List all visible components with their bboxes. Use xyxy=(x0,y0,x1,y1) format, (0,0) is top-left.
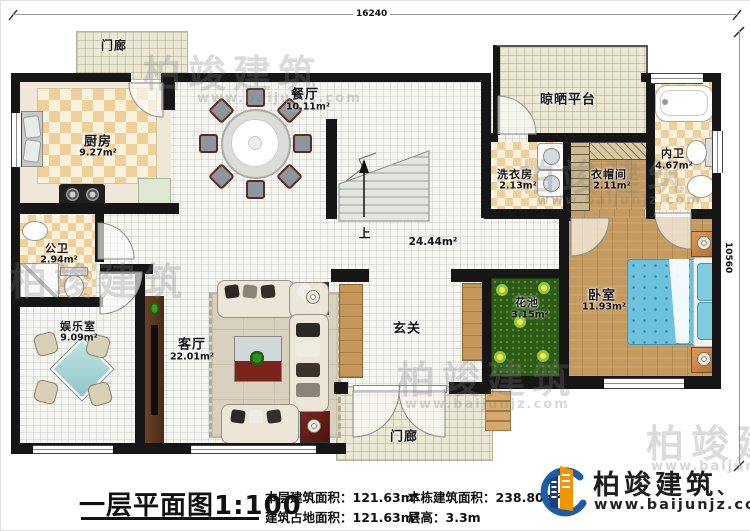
wall xyxy=(135,264,145,454)
wall xyxy=(646,82,655,211)
logo-url: www.baijunjz.com xyxy=(594,497,750,513)
room-area-public-bath: 2.94m² xyxy=(40,255,78,266)
pillow xyxy=(230,409,246,424)
kitchen-counter-unit xyxy=(138,178,171,206)
nightstand-lamp xyxy=(696,235,712,251)
room-area-entertainment: 9.09m² xyxy=(60,333,98,344)
room-area-master-bath: 4.67m² xyxy=(655,161,693,172)
room-label-drying-platform: 晾晒平台 xyxy=(540,89,596,108)
room-label-living: 客厅 xyxy=(178,334,206,353)
stat-label: 本栋建筑面积： xyxy=(408,490,496,505)
table-lamp xyxy=(306,290,320,304)
room-area-bedroom: 11.93m² xyxy=(582,302,626,313)
bath-sink xyxy=(22,221,48,241)
wall xyxy=(484,209,571,219)
room-label-porch-bottom: 门廊 xyxy=(390,426,418,445)
room-label-master-bath: 内卫 xyxy=(661,145,685,161)
entry-door-leaf xyxy=(399,385,447,393)
wall xyxy=(334,382,348,394)
entry-door-leaf xyxy=(353,385,401,393)
pillow xyxy=(260,284,275,298)
wardrobe xyxy=(589,142,648,160)
stat-label: 本层建筑面积： xyxy=(265,490,353,505)
wall xyxy=(95,214,104,262)
tv xyxy=(151,325,158,415)
logo-brush-mark: 、 xyxy=(717,478,739,499)
wall xyxy=(11,73,131,82)
room-area-dining: 10.11m² xyxy=(286,102,330,113)
pillow xyxy=(296,323,320,337)
wall xyxy=(161,73,491,82)
table-lamp xyxy=(307,419,321,433)
room-area-kitchen: 9.27m² xyxy=(79,148,117,159)
dimension-top-value: 16240 xyxy=(353,9,390,19)
wall xyxy=(481,82,491,218)
stairs-up-label: 上 xyxy=(358,225,371,242)
foyer-cabinet-right xyxy=(462,283,484,361)
wall xyxy=(528,133,654,142)
foyer-cabinet-left xyxy=(339,284,363,378)
hall-area-label: 24.44m² xyxy=(409,236,458,248)
room-area-planter: 3.15m² xyxy=(511,310,549,321)
shower xyxy=(20,263,59,298)
wall xyxy=(449,382,491,394)
window xyxy=(604,378,684,389)
wall xyxy=(11,203,179,214)
window xyxy=(712,131,723,173)
basin xyxy=(687,175,715,198)
wall xyxy=(326,119,337,219)
pillow xyxy=(266,409,282,424)
potted-plant xyxy=(246,347,268,369)
stat-floor-area: 本层建筑面积：121.63m² xyxy=(265,487,419,506)
wall xyxy=(712,82,721,389)
wall xyxy=(559,216,569,382)
stat-label: 建筑占地面积： xyxy=(265,510,353,525)
wall xyxy=(563,141,571,211)
pillow xyxy=(249,410,263,423)
wall xyxy=(484,133,498,142)
closet-shelf xyxy=(570,142,590,211)
dimension-right-value: 10560 xyxy=(723,239,733,276)
flower xyxy=(534,347,552,365)
cabinet-plant xyxy=(149,301,160,316)
flower xyxy=(493,281,511,299)
floor-plan-canvas: 16240 10560 xyxy=(0,0,750,531)
title-underline xyxy=(81,517,259,520)
window xyxy=(11,113,22,167)
dining-chair xyxy=(293,134,312,153)
wall xyxy=(482,376,721,389)
room-label-foyer: 玄关 xyxy=(393,318,421,337)
room-area-living: 22.01m² xyxy=(170,352,214,363)
dining-table-hub xyxy=(248,136,262,150)
wall xyxy=(11,297,103,307)
room-area-laundry: 2.13m² xyxy=(499,181,537,192)
stat-footprint-area: 建筑占地面积：121.63m² xyxy=(265,507,419,526)
window xyxy=(191,445,316,454)
porch-bottom xyxy=(336,386,493,461)
flower xyxy=(491,348,509,366)
dining-chair xyxy=(246,180,265,199)
wall xyxy=(100,264,153,274)
wall xyxy=(482,269,567,278)
dining-chair xyxy=(246,88,265,107)
kitchen-sink xyxy=(21,111,43,167)
wall xyxy=(482,269,491,382)
nightstand-lamp xyxy=(696,351,712,367)
room-area-closet: 2.11m² xyxy=(593,181,631,192)
pillow xyxy=(296,363,320,377)
washing-machine xyxy=(537,143,565,170)
wall xyxy=(331,269,369,282)
dining-chair xyxy=(199,134,218,153)
logo-icon xyxy=(537,461,589,525)
stat-floor-height: 层高：3.3m xyxy=(408,507,481,526)
pillow xyxy=(296,383,320,397)
pillow xyxy=(224,284,240,299)
toilet-bowl xyxy=(64,275,84,299)
stat-value: 3.3m xyxy=(446,510,481,525)
room-label-dining: 餐厅 xyxy=(291,84,319,103)
wall xyxy=(646,209,655,219)
stove xyxy=(59,184,105,205)
dimension-line-right xyxy=(739,31,740,467)
pillow xyxy=(242,284,257,298)
pillow xyxy=(296,343,320,357)
bathtub xyxy=(655,85,714,122)
room-label-porch-top: 门廊 xyxy=(101,37,127,54)
window xyxy=(651,73,703,84)
window xyxy=(33,445,113,454)
washing-machine xyxy=(537,170,565,197)
wall xyxy=(161,82,175,110)
room-label-planter: 花池 xyxy=(515,294,539,310)
stat-label: 层高： xyxy=(408,510,446,525)
entry-steps xyxy=(485,391,509,429)
